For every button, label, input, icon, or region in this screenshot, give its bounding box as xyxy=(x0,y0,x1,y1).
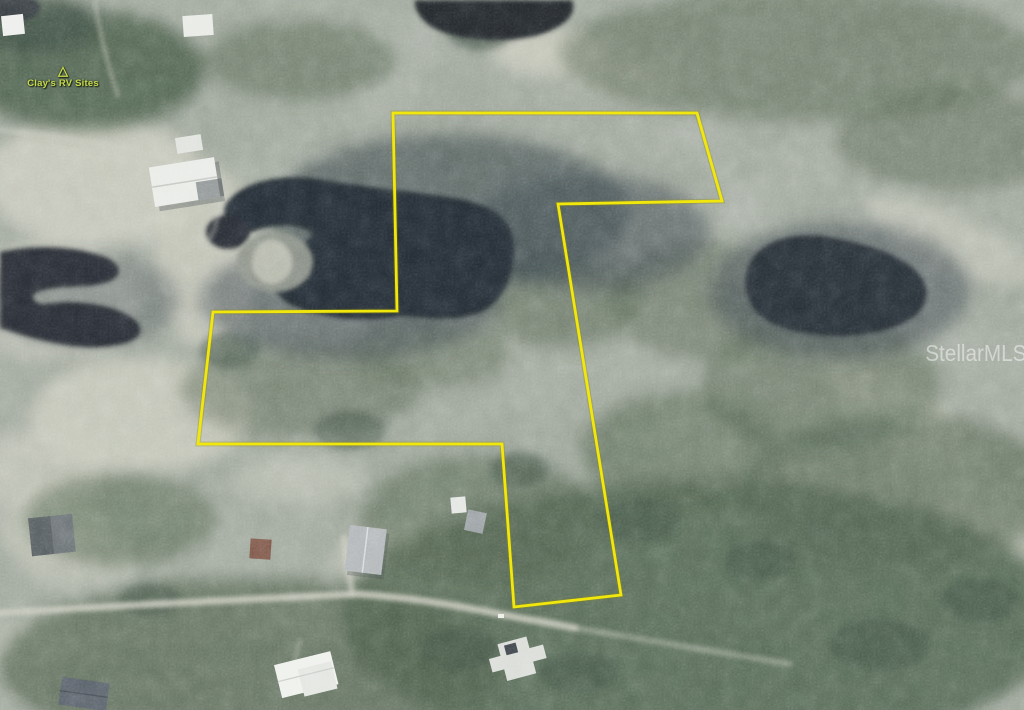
aerial-photo-svg xyxy=(0,0,1024,710)
aerial-property-photo: △ Clay's RV Sites StellarMLS xyxy=(0,0,1024,710)
